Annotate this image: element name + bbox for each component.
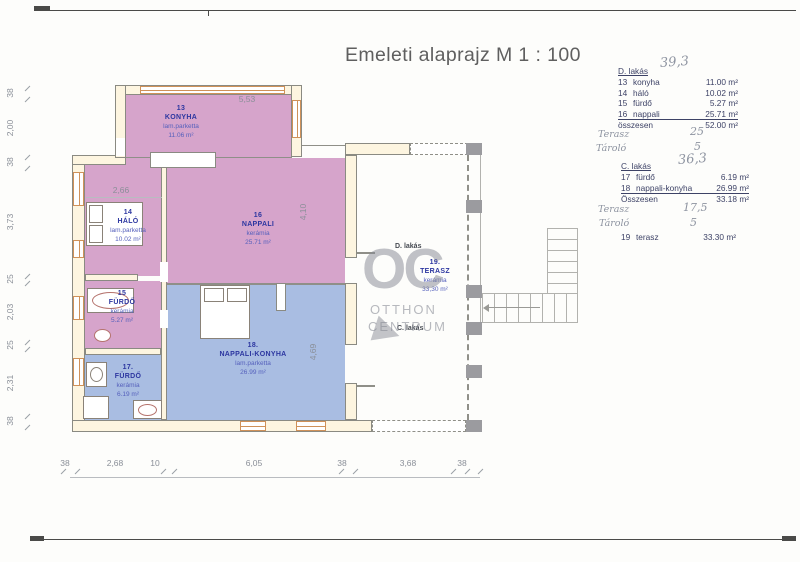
terrace-pillar [466, 365, 482, 378]
toilet [94, 329, 111, 342]
washbasin [133, 400, 162, 419]
pillow [227, 288, 247, 302]
partition-nappali-nk [167, 283, 345, 285]
legend-terasz-row: 19 terasz 33.30 m² [621, 232, 736, 242]
dim-tick [25, 86, 31, 92]
handwritten-terasz-c: Terasz [598, 204, 629, 215]
dim-left: 38 [5, 147, 15, 177]
dim-tick [353, 469, 359, 475]
dim-tick [25, 97, 31, 103]
room-label-nappali-konyha: 18. NAPPALI-KONYHA lam.parketta 26.99 m² [198, 341, 308, 377]
dim-konyha-width: 5,53 [227, 94, 267, 104]
dim-tick [465, 469, 471, 475]
dim-halo-width: 2,66 [101, 185, 141, 195]
partition-halo-furdo [85, 274, 138, 281]
room-label-halo: 14 HÁLÓ lam.parketta 10.02 m² [83, 208, 173, 244]
dim-tick [25, 155, 31, 161]
legend-row: 19 terasz 33.30 m² [621, 232, 736, 242]
dim-tick [478, 469, 484, 475]
dim-left: 2,31 [5, 368, 15, 398]
handwritten-tarolo-c-value: 5 [690, 216, 697, 229]
dim-tick [25, 425, 31, 431]
watermark-logo: OC [362, 243, 482, 295]
dim-bottom: 38 [437, 458, 487, 468]
legend-row: 15 fürdő 5.27 m² [618, 98, 738, 108]
stairs-direction-arrow [483, 304, 489, 312]
dim-left: 2,03 [5, 297, 15, 327]
legend-d-flat: D. lakás 13 konyha 11.00 m² 14 háló 10.0… [618, 66, 738, 130]
dim-bottom: 6,05 [229, 458, 279, 468]
watermark-text: OTTHON [370, 301, 482, 318]
dim-nk-height: 4,69 [308, 337, 318, 367]
legend-row: 14 háló 10.02 m² [618, 88, 738, 98]
dim-tick [61, 469, 67, 475]
dim-bottom: 38 [317, 458, 367, 468]
room-label-furdo15: 15 FÜRDŐ kerámia 5.27 m² [77, 289, 167, 325]
room-label-nappali: 16 NAPPALI kerámia 25.71 m² [213, 211, 303, 247]
watermark: OC OTTHON CENTRUM [362, 243, 482, 335]
legend-row: 17 fürdő 6.19 m² [621, 172, 749, 182]
window [296, 421, 326, 431]
dim-bottom: 38 [40, 458, 90, 468]
window [292, 100, 301, 138]
floorplan-sheet: { "title": "Emeleti alaprajz M 1 : 100",… [0, 0, 800, 562]
wall-bottom-terrace-dashed [372, 420, 466, 432]
stairs-lower-flight [482, 293, 578, 323]
dim-tick [75, 469, 81, 475]
handwritten-tarolo-d: Tároló [596, 143, 626, 154]
dim-bottom: 10 [130, 458, 180, 468]
legend-row: 13 konyha 11.00 m² [618, 77, 738, 87]
wall-terrace-parapet-dashed [410, 143, 468, 155]
wall-terrace-parapet [345, 143, 410, 155]
dim-left: 25 [5, 264, 15, 294]
legend-row: 16 nappali 25.71 m² [618, 109, 738, 120]
handwritten-total-c: 36,3 [678, 151, 708, 168]
legend-total-row: összesen 52.00 m² [618, 120, 738, 130]
wall-line [302, 145, 345, 146]
room-label-furdo17: 17. FÜRDŐ kerámia 6.19 m² [83, 363, 173, 399]
wall-stub [276, 283, 286, 311]
dim-tick [25, 340, 31, 346]
dim-left: 38 [5, 406, 15, 436]
terrace-pillar [466, 420, 482, 432]
stairs-walkline [488, 307, 540, 308]
wall-terrace-left-mid [345, 283, 357, 345]
dim-tick [172, 469, 178, 475]
sheet-corner-mark [34, 6, 50, 11]
dim-tick [339, 469, 345, 475]
door-opening [116, 138, 125, 156]
dim-left: 25 [5, 330, 15, 360]
dim-tick [25, 414, 31, 420]
watermark-text: CENTRUM [368, 318, 482, 335]
sheet-top-line [34, 10, 796, 11]
legend-row: 18 nappali-konyha 26.99 m² [621, 183, 749, 194]
dim-tick [25, 166, 31, 172]
partition-furdo15-furdo17 [85, 348, 161, 355]
dim-left: 3,73 [5, 207, 15, 237]
door-leaf [357, 385, 375, 387]
handwritten-tarolo-c: Tároló [599, 218, 629, 229]
wall-bottom-exterior [72, 420, 372, 432]
dim-line [70, 477, 480, 478]
terrace-pillar [466, 143, 482, 155]
dim-tick [161, 469, 167, 475]
dim-bottom: 3,68 [383, 458, 433, 468]
window [73, 172, 84, 206]
dim-line [86, 197, 162, 198]
wall-terrace-left-upper [345, 155, 357, 258]
pillow [204, 288, 224, 302]
handwritten-total-d: 39,3 [660, 54, 690, 71]
dim-left: 38 [5, 78, 15, 108]
sheet-bottom-line [30, 539, 796, 540]
dim-tick [25, 274, 31, 280]
dim-tick [25, 281, 31, 287]
dim-tick [25, 347, 31, 353]
dim-nappali-height: 4,10 [298, 197, 308, 227]
shower [83, 396, 109, 419]
wall-line [126, 157, 152, 158]
handwritten-terasz-d-value: 25 [690, 125, 704, 138]
dim-left: 2,00 [5, 113, 15, 143]
window [140, 86, 285, 94]
door-opening [160, 262, 168, 282]
wall-line [216, 157, 292, 158]
sheet-tick [208, 10, 209, 16]
sheet-corner-mark [30, 536, 44, 541]
washbasin-bowl [138, 404, 157, 416]
kitchen-counter [150, 152, 216, 168]
sheet-corner-mark [782, 536, 796, 541]
terrace-pillar [466, 200, 482, 213]
handwritten-terasz-c-value: 17,5 [683, 201, 708, 214]
handwritten-terasz-d: Terasz [598, 129, 629, 140]
wall-terrace-left-lower [345, 383, 357, 420]
window [240, 421, 266, 431]
stairs-upper-flight [547, 228, 578, 294]
page-title: Emeleti alaprajz M 1 : 100 [345, 44, 581, 67]
dim-tick [451, 469, 457, 475]
room-label-konyha: 13 KONYHA lam.parketta 11.06 m² [136, 104, 226, 140]
